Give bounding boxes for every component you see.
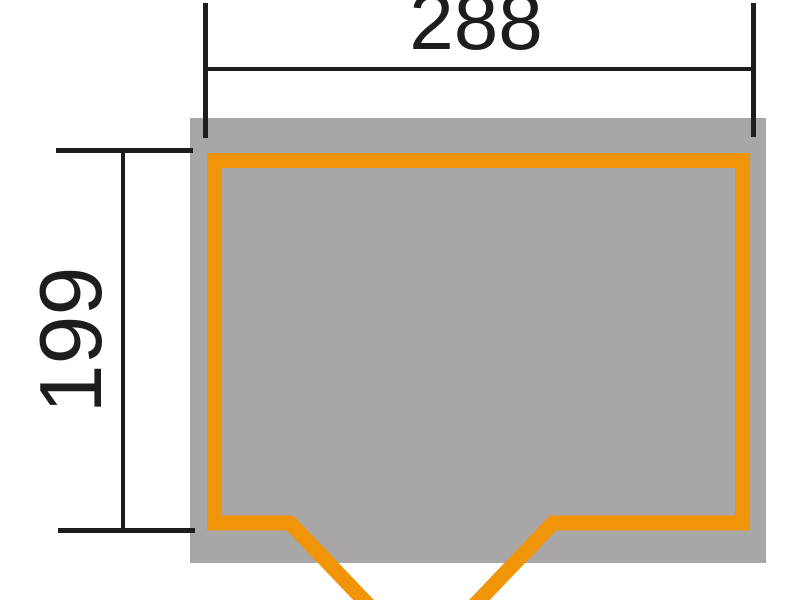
shed-footprint-rect	[190, 118, 766, 563]
floor-plan-canvas: 288 199	[0, 0, 800, 600]
width-extension-tick-right	[751, 3, 756, 137]
depth-extension-tick-bottom	[58, 528, 195, 533]
width-extension-tick-left	[203, 3, 208, 138]
width-dimension-label: 288	[336, 0, 616, 62]
width-dimension-line	[205, 67, 753, 71]
floor-plan-drawing	[0, 0, 800, 600]
depth-extension-tick-top	[56, 148, 193, 153]
depth-dimension-line	[121, 150, 125, 530]
depth-dimension-label: 199	[31, 200, 111, 480]
